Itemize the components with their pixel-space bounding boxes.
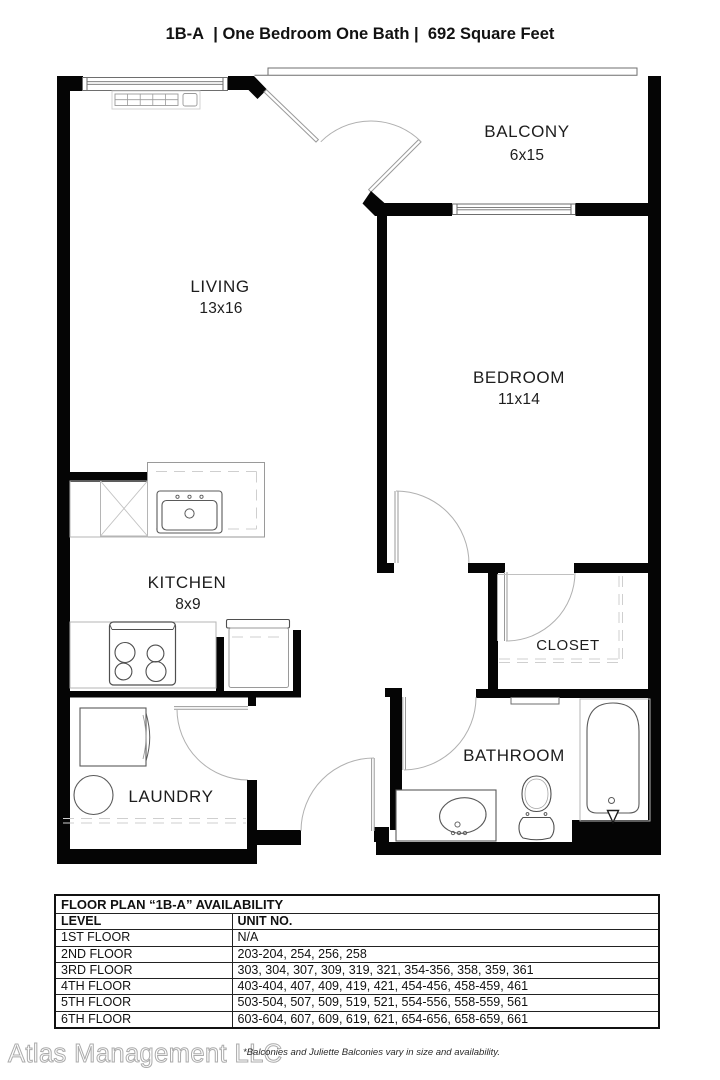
- svg-text:LAUNDRY: LAUNDRY: [128, 787, 213, 806]
- svg-text:BATHROOM: BATHROOM: [463, 746, 565, 765]
- svg-text:LIVING: LIVING: [190, 277, 249, 296]
- svg-text:13x16: 13x16: [199, 300, 242, 317]
- svg-text:8x9: 8x9: [175, 596, 201, 613]
- svg-text:KITCHEN: KITCHEN: [148, 573, 227, 592]
- svg-text:BEDROOM: BEDROOM: [473, 368, 565, 387]
- svg-text:BALCONY: BALCONY: [484, 122, 569, 141]
- svg-text:6x15: 6x15: [510, 147, 544, 164]
- svg-text:CLOSET: CLOSET: [536, 637, 600, 654]
- svg-text:11x14: 11x14: [498, 391, 540, 408]
